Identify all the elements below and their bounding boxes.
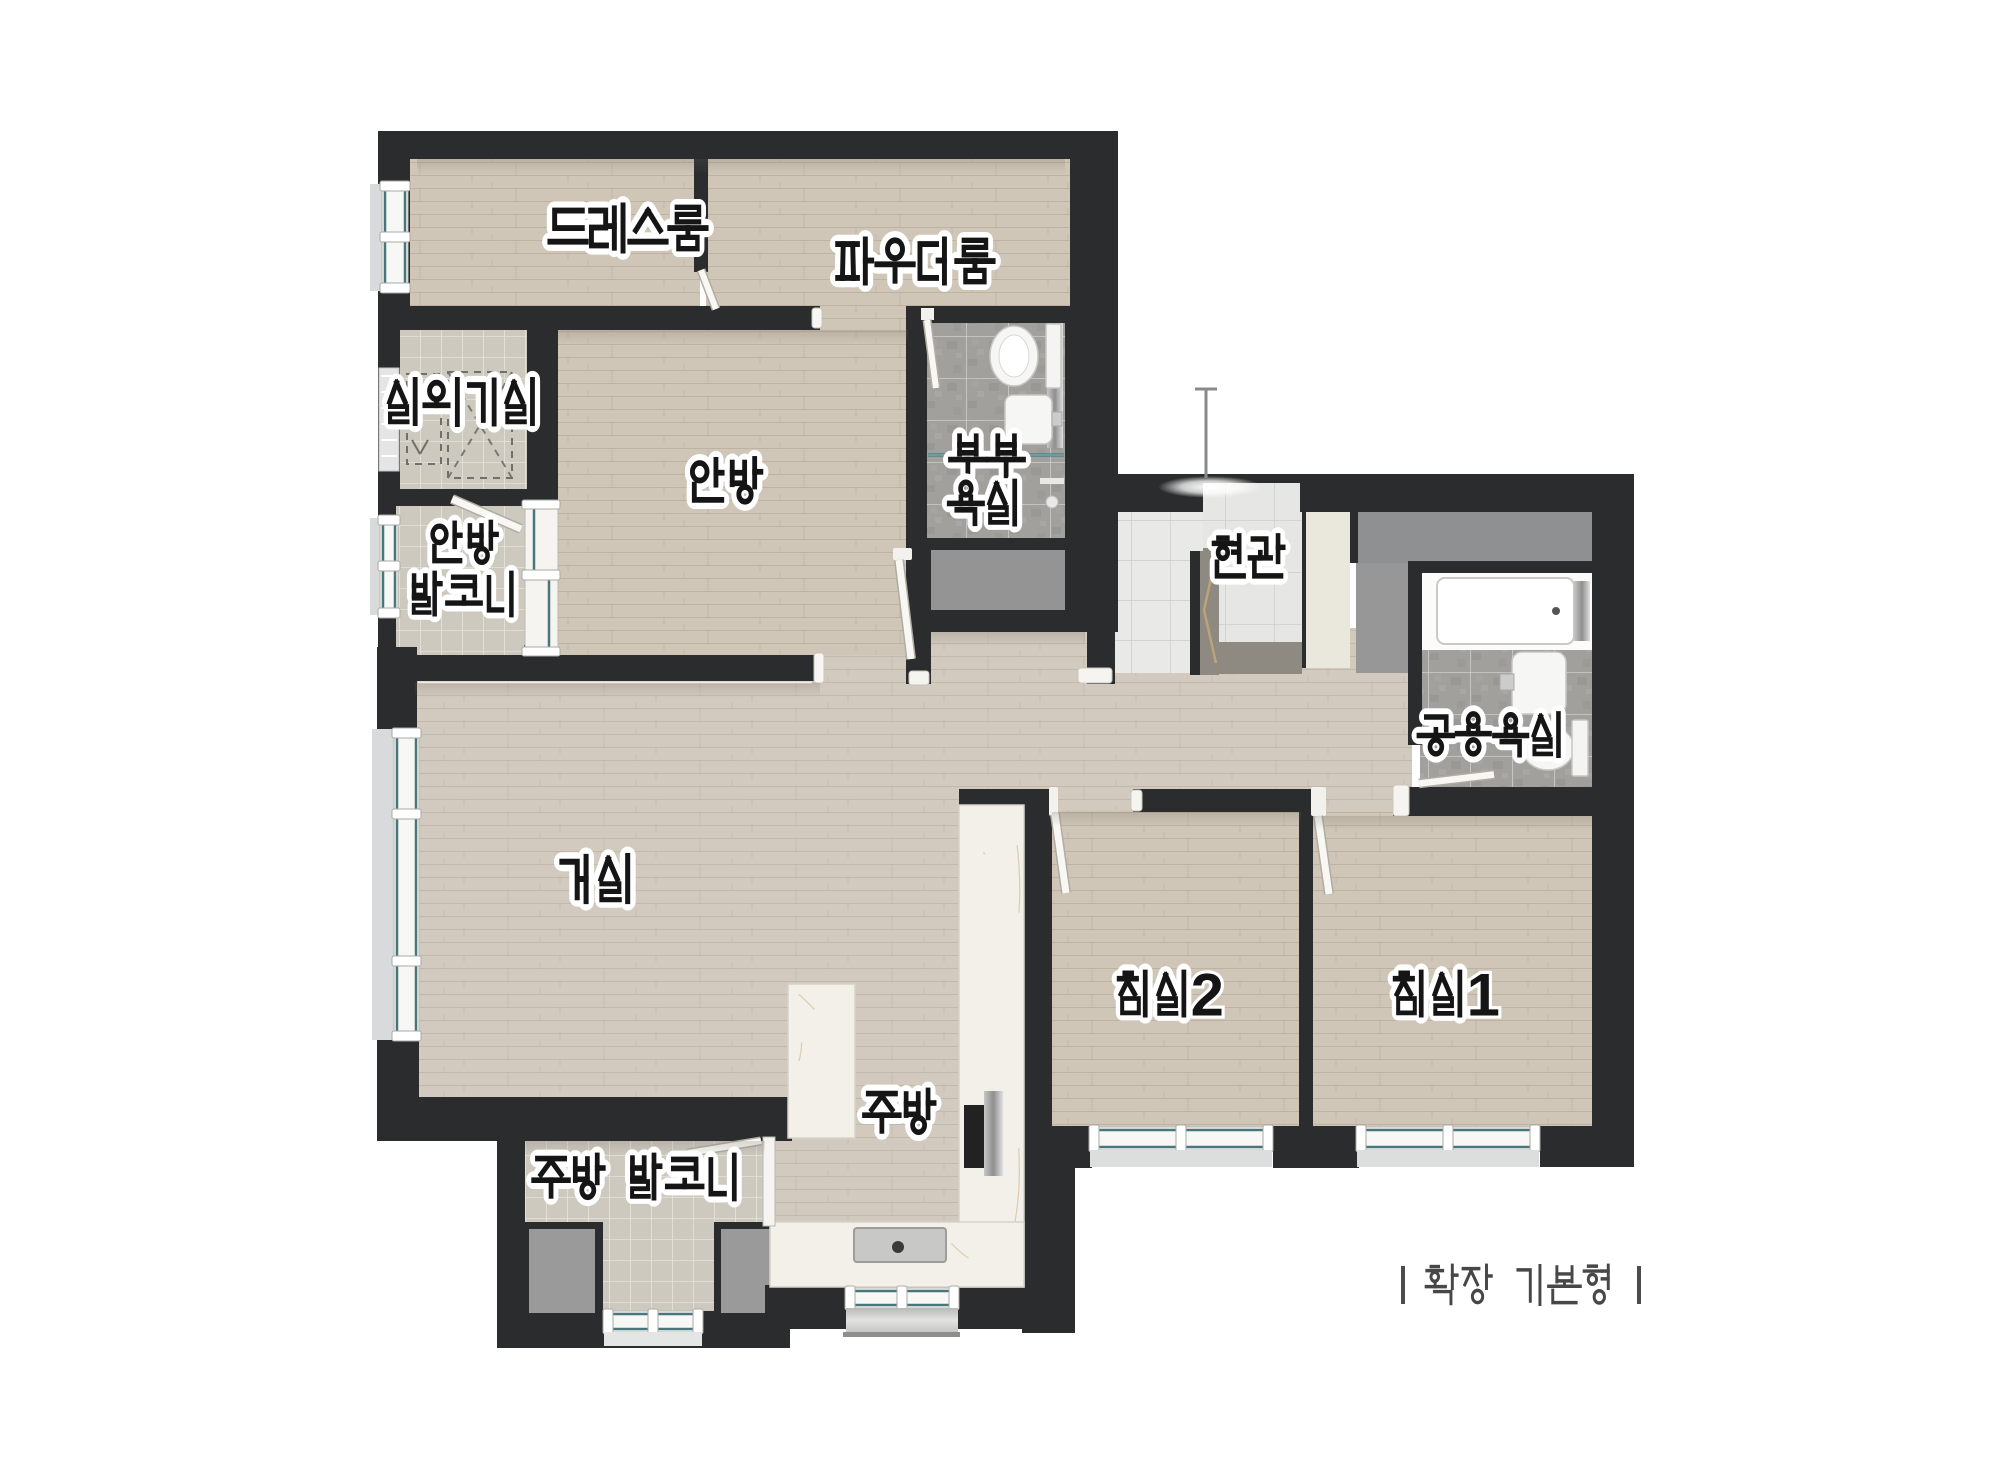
svg-text:1: 1 bbox=[1467, 961, 1500, 1028]
svg-text:2: 2 bbox=[1191, 961, 1224, 1028]
